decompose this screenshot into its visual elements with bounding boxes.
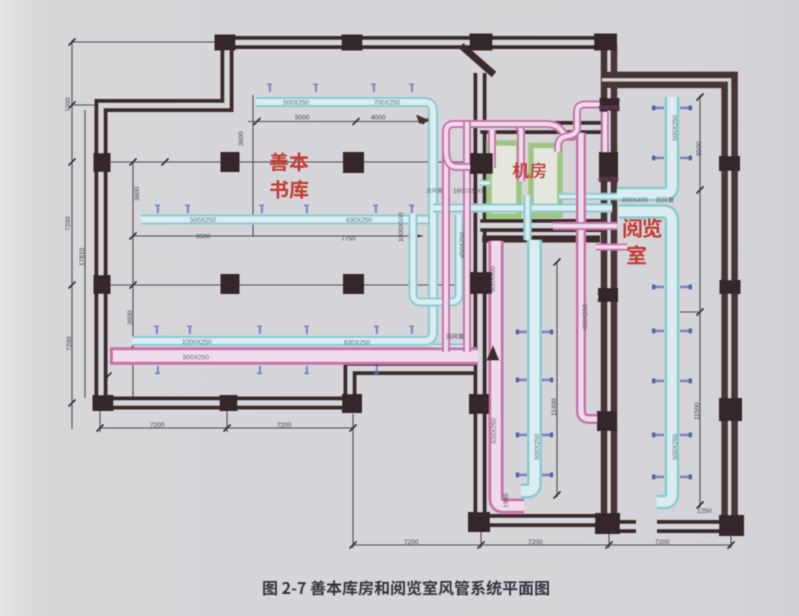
svg-text:7200: 7200 bbox=[65, 216, 72, 231]
svg-text:4000: 4000 bbox=[371, 115, 386, 122]
svg-text:800X400: 800X400 bbox=[622, 197, 648, 204]
svg-text:1600X500: 1600X500 bbox=[453, 188, 483, 195]
svg-text:11500: 11500 bbox=[694, 402, 701, 420]
svg-text:3600: 3600 bbox=[238, 131, 245, 146]
svg-text:700X250: 700X250 bbox=[374, 100, 400, 107]
svg-text:630X250: 630X250 bbox=[346, 217, 372, 224]
svg-text:7200: 7200 bbox=[277, 422, 292, 429]
svg-text:800X400: 800X400 bbox=[490, 266, 497, 292]
svg-text:7200: 7200 bbox=[150, 422, 165, 429]
svg-text:8500: 8500 bbox=[196, 234, 211, 241]
svg-text:500X250: 500X250 bbox=[283, 100, 309, 107]
svg-text:450X250: 450X250 bbox=[459, 232, 466, 258]
svg-text:7750: 7750 bbox=[341, 236, 356, 243]
svg-text:1250: 1250 bbox=[697, 508, 712, 515]
svg-text:500X250: 500X250 bbox=[672, 115, 679, 141]
svg-text:8500: 8500 bbox=[696, 141, 703, 156]
svg-text:450X200: 450X200 bbox=[597, 177, 619, 183]
svg-text:500X250: 500X250 bbox=[534, 434, 541, 460]
svg-text:450X250: 450X250 bbox=[582, 304, 589, 330]
svg-text:7200: 7200 bbox=[404, 539, 419, 546]
svg-text:630X250: 630X250 bbox=[491, 418, 498, 444]
svg-text:450X200: 450X200 bbox=[597, 106, 619, 112]
svg-text:500X250: 500X250 bbox=[190, 217, 216, 224]
svg-text:7200: 7200 bbox=[655, 539, 670, 546]
svg-text:7200: 7200 bbox=[66, 336, 73, 351]
svg-text:500X250: 500X250 bbox=[672, 434, 679, 460]
svg-text:800X250: 800X250 bbox=[183, 355, 209, 362]
svg-text:1985: 1985 bbox=[503, 493, 510, 508]
svg-text:7200: 7200 bbox=[65, 97, 72, 112]
svg-text:3600: 3600 bbox=[134, 186, 141, 201]
svg-text:630X250: 630X250 bbox=[344, 340, 370, 347]
svg-text:7200: 7200 bbox=[528, 539, 543, 546]
svg-text:11400: 11400 bbox=[551, 398, 558, 416]
svg-text:3600: 3600 bbox=[127, 310, 134, 325]
svg-text:1000X250: 1000X250 bbox=[182, 339, 212, 346]
svg-text:5000: 5000 bbox=[295, 115, 310, 122]
svg-text:17810: 17810 bbox=[79, 248, 86, 266]
svg-text:1000X500: 1000X500 bbox=[398, 212, 405, 242]
